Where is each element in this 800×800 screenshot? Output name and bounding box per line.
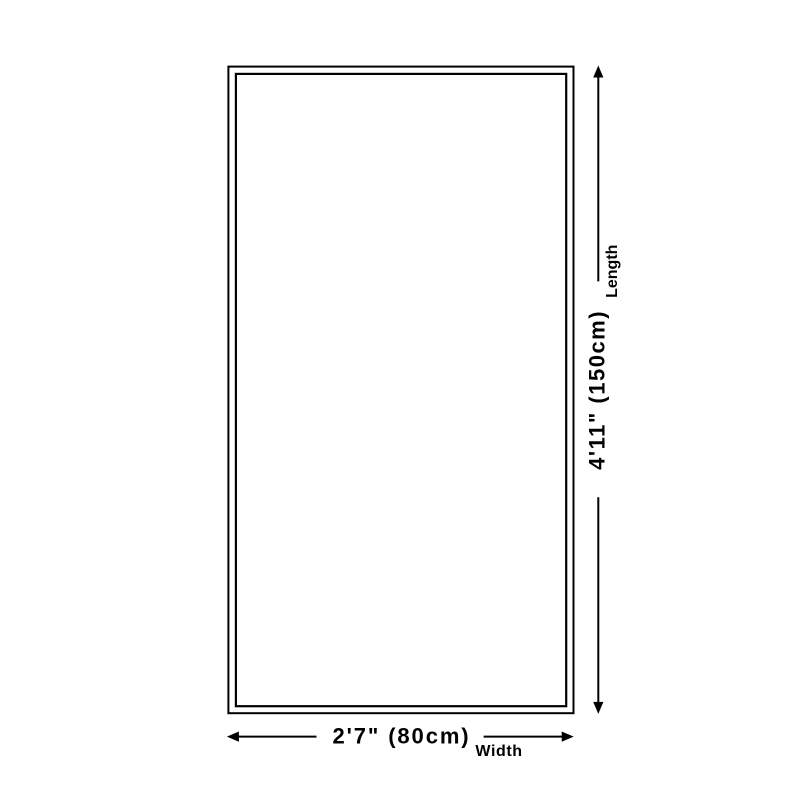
svg-text:4'11" (150cm): 4'11" (150cm) [585, 310, 610, 470]
svg-text:Width: Width [475, 743, 522, 760]
svg-text:Length: Length [604, 245, 621, 298]
svg-text:2'7" (80cm): 2'7" (80cm) [332, 723, 470, 748]
